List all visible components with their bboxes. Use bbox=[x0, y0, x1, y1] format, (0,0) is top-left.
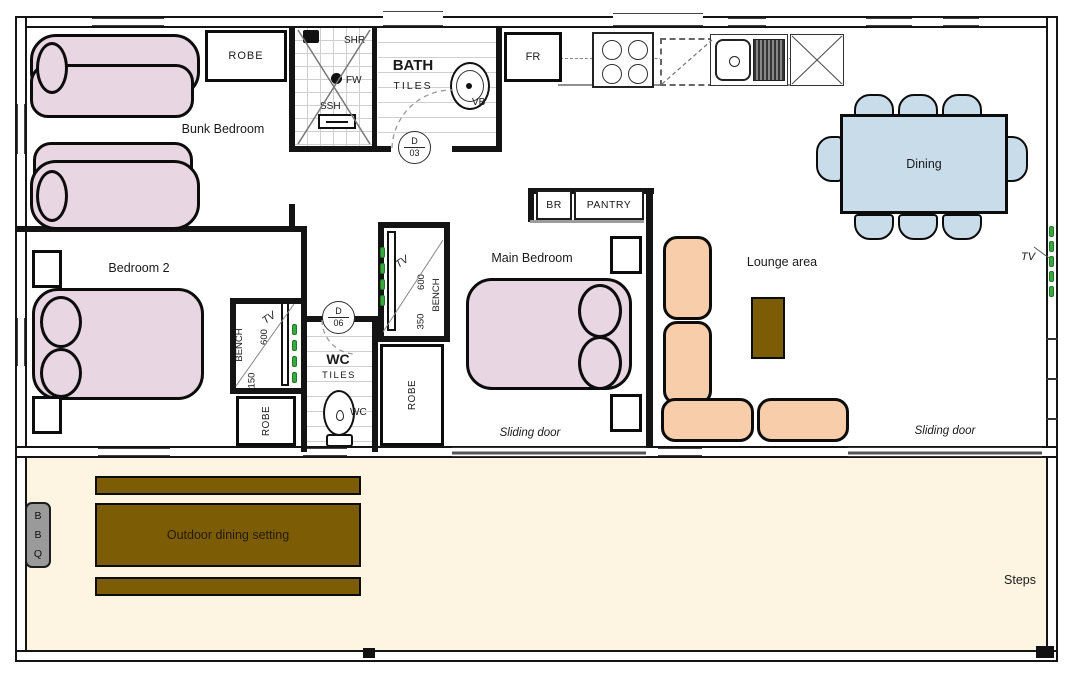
sliding-door-2-label: Sliding door bbox=[893, 424, 997, 438]
bbq-letter: B bbox=[34, 529, 41, 541]
dining-chair bbox=[942, 214, 982, 240]
main-bedroom-label: Main Bedroom bbox=[468, 250, 596, 266]
burner bbox=[628, 40, 648, 60]
outdoor-dining-table: Outdoor dining setting bbox=[95, 503, 361, 567]
tv-marker bbox=[292, 372, 297, 383]
dining-chair bbox=[898, 214, 938, 240]
window bbox=[383, 11, 443, 26]
bedside-table bbox=[32, 250, 62, 288]
wc-tiles-label: TILES bbox=[318, 369, 360, 381]
outdoor-bench-seat bbox=[95, 577, 361, 596]
bedside-table bbox=[610, 236, 642, 274]
shower-label: SHR bbox=[344, 34, 376, 46]
robe-main-label: ROBE bbox=[364, 366, 460, 424]
door-d06: D 06 bbox=[322, 301, 355, 334]
tv-marker bbox=[380, 247, 385, 258]
floor-plan: SHR FW SSH BATH TILES VB D 03 FR BR PANT… bbox=[0, 0, 1074, 688]
sliding-door-2-track bbox=[848, 447, 1042, 457]
window bbox=[98, 448, 170, 456]
burner bbox=[602, 64, 622, 84]
window bbox=[943, 18, 979, 26]
floor-waste-icon bbox=[331, 73, 342, 84]
lounge-label: Lounge area bbox=[736, 254, 828, 270]
window bbox=[17, 104, 25, 154]
window bbox=[658, 448, 702, 456]
vanity-label: VB bbox=[472, 96, 494, 108]
pillow bbox=[36, 42, 68, 94]
window bbox=[728, 18, 766, 26]
shower-shelf-label: SSH bbox=[320, 100, 352, 112]
window bbox=[303, 448, 347, 456]
shower-head-icon bbox=[303, 30, 319, 43]
door-d06-letter: D bbox=[335, 307, 342, 316]
pillow bbox=[40, 348, 82, 398]
bench-main-dim-350: 350 bbox=[415, 294, 428, 350]
wall-stub bbox=[289, 204, 295, 230]
toilet-flush bbox=[336, 410, 344, 421]
bench-main-top bbox=[387, 231, 396, 331]
sliding-door-1-label: Sliding door bbox=[478, 426, 582, 440]
burner bbox=[628, 64, 648, 84]
wc-label: WC bbox=[318, 350, 358, 368]
window bbox=[866, 18, 912, 26]
outdoor-bench-seat bbox=[95, 476, 361, 495]
tv-marker bbox=[380, 295, 385, 306]
tv-marker bbox=[1049, 256, 1054, 267]
tv-marker bbox=[1049, 226, 1054, 237]
window bbox=[92, 18, 164, 26]
bath-label: BATH bbox=[382, 56, 444, 74]
robe-main: ROBE bbox=[380, 344, 444, 446]
bedside-table bbox=[610, 394, 642, 432]
sliding-door-1-track bbox=[452, 447, 646, 457]
door-d03-number: 03 bbox=[409, 149, 419, 158]
wall-benchcol-bottom bbox=[378, 336, 448, 342]
bath-tiles-label: TILES bbox=[386, 80, 440, 92]
tv-label-lounge: TV bbox=[1021, 250, 1045, 264]
robe-bunk: ROBE bbox=[205, 30, 287, 82]
wall-lounge-west bbox=[646, 188, 653, 446]
wall-pantry-left bbox=[528, 188, 534, 222]
broom-cupboard-label: BR bbox=[546, 199, 562, 211]
sink-drain bbox=[729, 56, 740, 67]
sofa-module bbox=[757, 398, 849, 442]
wall-bath-bottom-b bbox=[452, 146, 502, 152]
tv-marker bbox=[1049, 271, 1054, 282]
dining-chair bbox=[816, 136, 842, 182]
tv-marker bbox=[380, 263, 385, 274]
wall-benchcol-top bbox=[378, 222, 450, 228]
sink-unit bbox=[710, 34, 788, 86]
bbq-letter: B bbox=[34, 510, 41, 522]
toilet-cistern bbox=[326, 434, 353, 447]
bbq-letter: Q bbox=[34, 548, 42, 560]
door-d06-number: 06 bbox=[333, 319, 343, 328]
drainer-icon bbox=[753, 39, 785, 81]
pillow bbox=[578, 284, 622, 338]
vanity-tap-icon bbox=[466, 83, 472, 89]
floor-waste-label: FW bbox=[346, 74, 372, 86]
steps-label: Steps bbox=[990, 572, 1050, 588]
deck-post bbox=[363, 648, 375, 658]
tv-marker bbox=[292, 340, 297, 351]
bbq: B B Q bbox=[25, 502, 51, 568]
step-tick bbox=[1046, 378, 1058, 380]
dining-chair bbox=[854, 214, 894, 240]
pantry: PANTRY bbox=[574, 190, 644, 220]
deck-post bbox=[1036, 646, 1054, 658]
outdoor-dining-label: Outdoor dining setting bbox=[97, 505, 359, 565]
fridge-label: FR bbox=[507, 35, 559, 79]
corner-cabinet bbox=[790, 34, 844, 86]
step-tick bbox=[1046, 418, 1058, 420]
window bbox=[613, 13, 703, 26]
bedroom2-label: Bedroom 2 bbox=[88, 260, 190, 276]
bedside-table bbox=[32, 396, 62, 434]
dining-label: Dining bbox=[906, 157, 941, 171]
sofa-module bbox=[663, 236, 712, 320]
coffee-table bbox=[751, 297, 785, 359]
door-d03-letter: D bbox=[411, 137, 418, 146]
tv-marker bbox=[1049, 286, 1054, 297]
pillow bbox=[36, 170, 68, 222]
shower-shelf-icon bbox=[318, 114, 356, 129]
cooktop-icon bbox=[592, 32, 654, 88]
bench-main-label: BENCH bbox=[429, 260, 443, 330]
bench-bedroom2-label: BENCH bbox=[232, 310, 246, 380]
pillow bbox=[40, 296, 82, 348]
pillow bbox=[578, 336, 622, 390]
tv-marker bbox=[380, 279, 385, 290]
dining-table: Dining bbox=[840, 114, 1008, 214]
robe-bedroom2-label: ROBE bbox=[244, 394, 288, 448]
broom-cupboard: BR bbox=[536, 190, 572, 220]
robe-bedroom2: ROBE bbox=[236, 396, 296, 446]
tv-marker bbox=[1049, 241, 1054, 252]
door-d03: D 03 bbox=[398, 131, 431, 164]
window bbox=[17, 318, 25, 366]
fridge: FR bbox=[504, 32, 562, 82]
wall-bath-right bbox=[496, 26, 502, 152]
dishwasher-dashed bbox=[660, 38, 714, 86]
wall-deck-south bbox=[15, 650, 1058, 662]
sink-bowl-icon bbox=[715, 39, 751, 81]
pantry-label: PANTRY bbox=[587, 199, 632, 211]
step-tick bbox=[1046, 338, 1058, 340]
robe-bunk-label: ROBE bbox=[208, 33, 284, 79]
burner bbox=[602, 40, 622, 60]
tv-marker bbox=[292, 324, 297, 335]
sofa-module bbox=[661, 398, 754, 442]
bench-counter-line bbox=[530, 220, 644, 223]
tv-marker bbox=[292, 356, 297, 367]
bunk-bedroom-label: Bunk Bedroom bbox=[148, 120, 298, 138]
sofa-module bbox=[663, 321, 712, 405]
wall-benchcol-right bbox=[444, 222, 450, 342]
